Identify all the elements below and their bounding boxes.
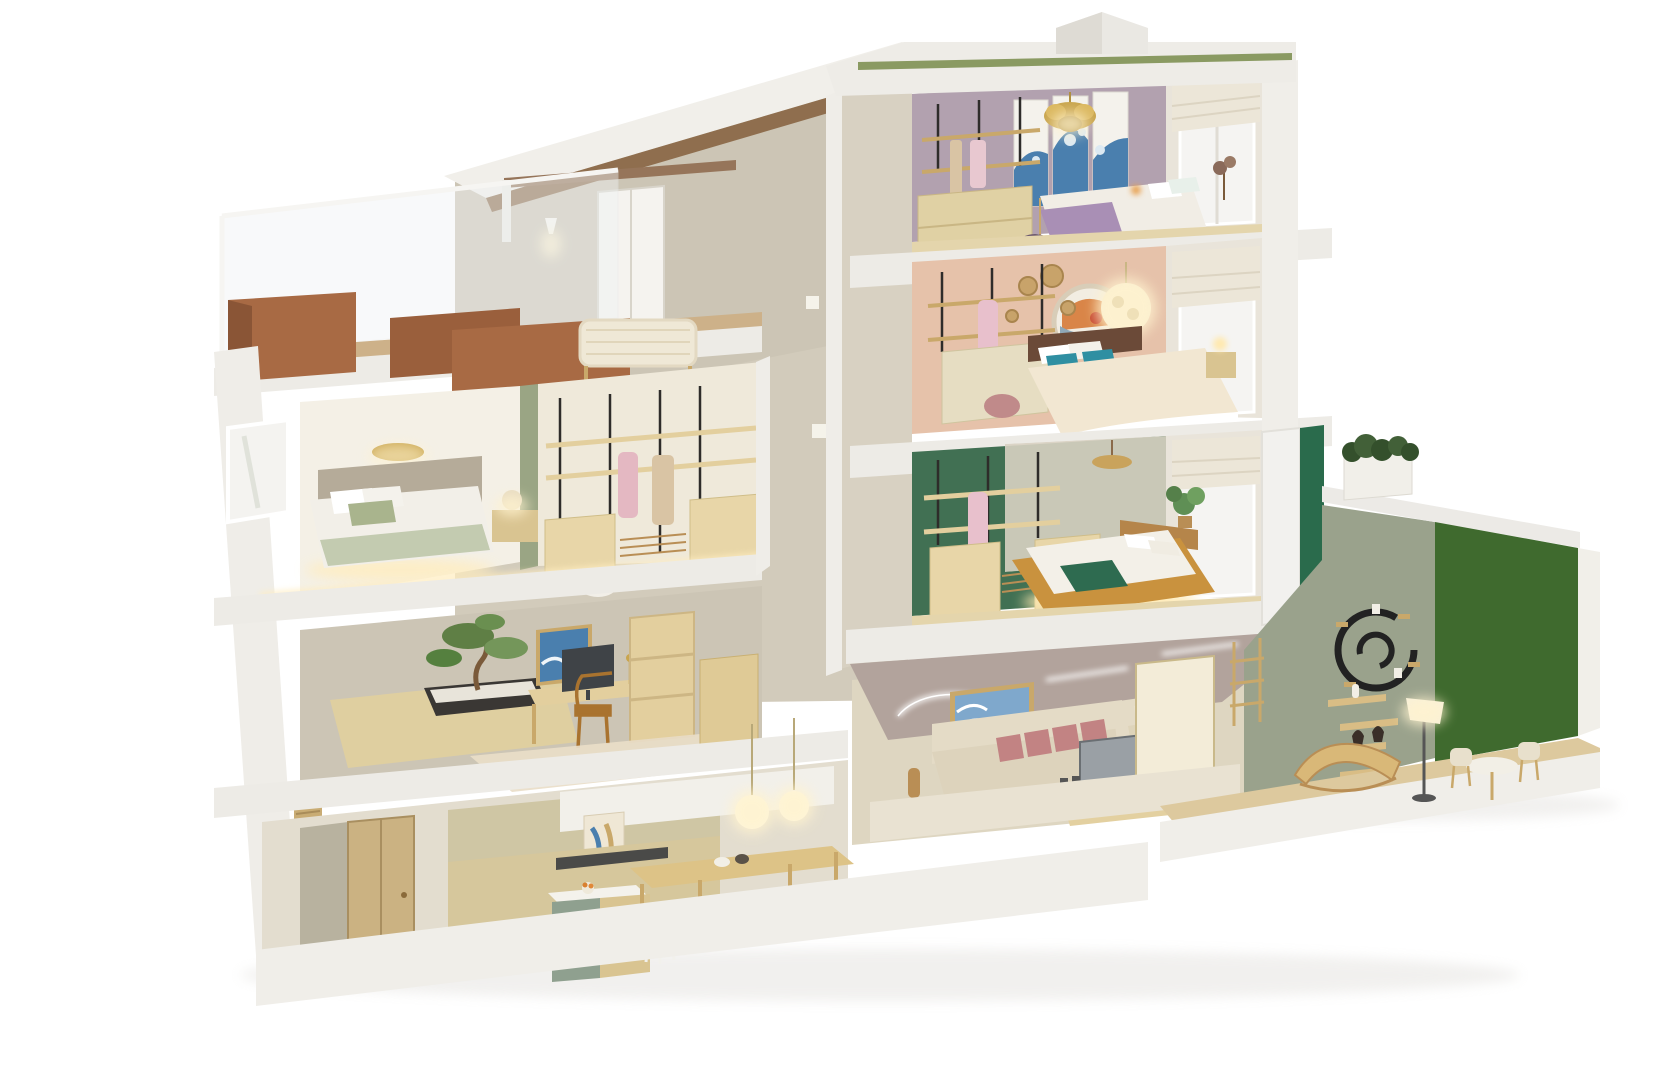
lamp-glow <box>496 496 528 516</box>
amber-lamp <box>1131 185 1141 195</box>
sage-pillow <box>348 500 396 526</box>
door-handle <box>401 892 407 898</box>
bookshelf <box>630 612 694 742</box>
white-bottle <box>1352 684 1359 698</box>
hanging-top <box>970 140 986 188</box>
wing-right-edge <box>756 356 770 576</box>
office-cabinet <box>700 654 758 746</box>
vase <box>714 857 730 867</box>
annex-right-frame <box>1578 548 1600 736</box>
peach-bedroom <box>912 238 1262 442</box>
hanging-robe-pink <box>618 452 638 518</box>
bed-sage <box>305 456 495 581</box>
roof-planter <box>1342 434 1419 500</box>
tower-left-edge <box>826 90 842 676</box>
green-bedroom <box>912 430 1262 620</box>
tower-left-wall <box>836 72 912 670</box>
stair-wall-light-icon <box>812 424 826 438</box>
vertical-garden <box>1435 522 1578 762</box>
monitor <box>562 644 614 692</box>
hanging-pants <box>950 140 962 196</box>
nightstand <box>1206 352 1236 378</box>
side-figure <box>908 768 920 798</box>
roman-shade <box>1172 436 1260 490</box>
vase <box>735 854 749 864</box>
sage-divider <box>520 384 538 570</box>
rose-pouf <box>984 394 1020 418</box>
house-cutaway-render <box>0 0 1680 1080</box>
stair-wall-light-icon <box>806 296 819 309</box>
nightstand-lamp <box>1213 337 1227 351</box>
closet-cabinet <box>930 542 1000 620</box>
hanging-overalls <box>652 455 674 525</box>
render-canvas <box>0 0 1680 1080</box>
hanging-robe-pink <box>968 492 988 550</box>
pyramid-skylight <box>1056 12 1148 54</box>
